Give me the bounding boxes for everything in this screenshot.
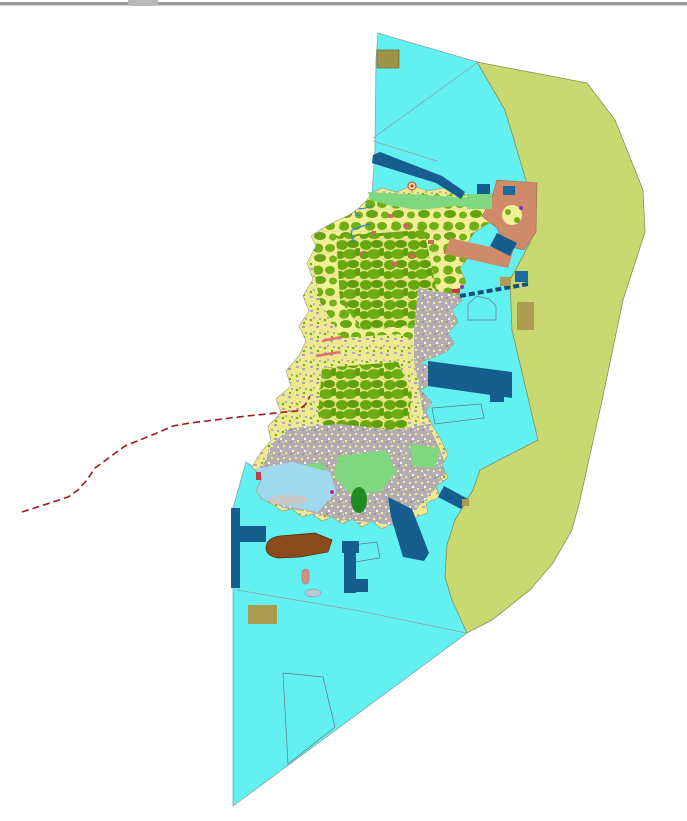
north-khaki-rect bbox=[377, 50, 399, 68]
ne-green-rect bbox=[467, 194, 492, 209]
islet-gray bbox=[305, 589, 321, 597]
island-west-marker bbox=[256, 472, 261, 480]
nw-buoy-marker bbox=[408, 182, 416, 190]
south-khaki-square bbox=[248, 605, 277, 624]
island-sand-flat bbox=[268, 495, 308, 505]
islet-pink bbox=[302, 569, 309, 584]
salmon-inner-green-2 bbox=[514, 217, 520, 223]
map-canvas[interactable] bbox=[0, 0, 687, 821]
map-viewport bbox=[0, 0, 687, 821]
east-khaki-square bbox=[500, 277, 511, 286]
east-navy-square bbox=[515, 271, 528, 282]
se-khaki-dot bbox=[462, 499, 469, 506]
harbor-square bbox=[490, 388, 504, 402]
island-park-blob bbox=[351, 487, 367, 513]
salmon-inner-green-1 bbox=[505, 209, 511, 215]
island-meadow-2 bbox=[410, 444, 440, 468]
ne-blue-rect bbox=[477, 184, 490, 194]
island-magenta-mark bbox=[330, 490, 334, 494]
ne-purple-dot bbox=[519, 206, 523, 210]
ne-navy-rect bbox=[503, 186, 515, 195]
east-khaki-rect bbox=[517, 302, 534, 330]
